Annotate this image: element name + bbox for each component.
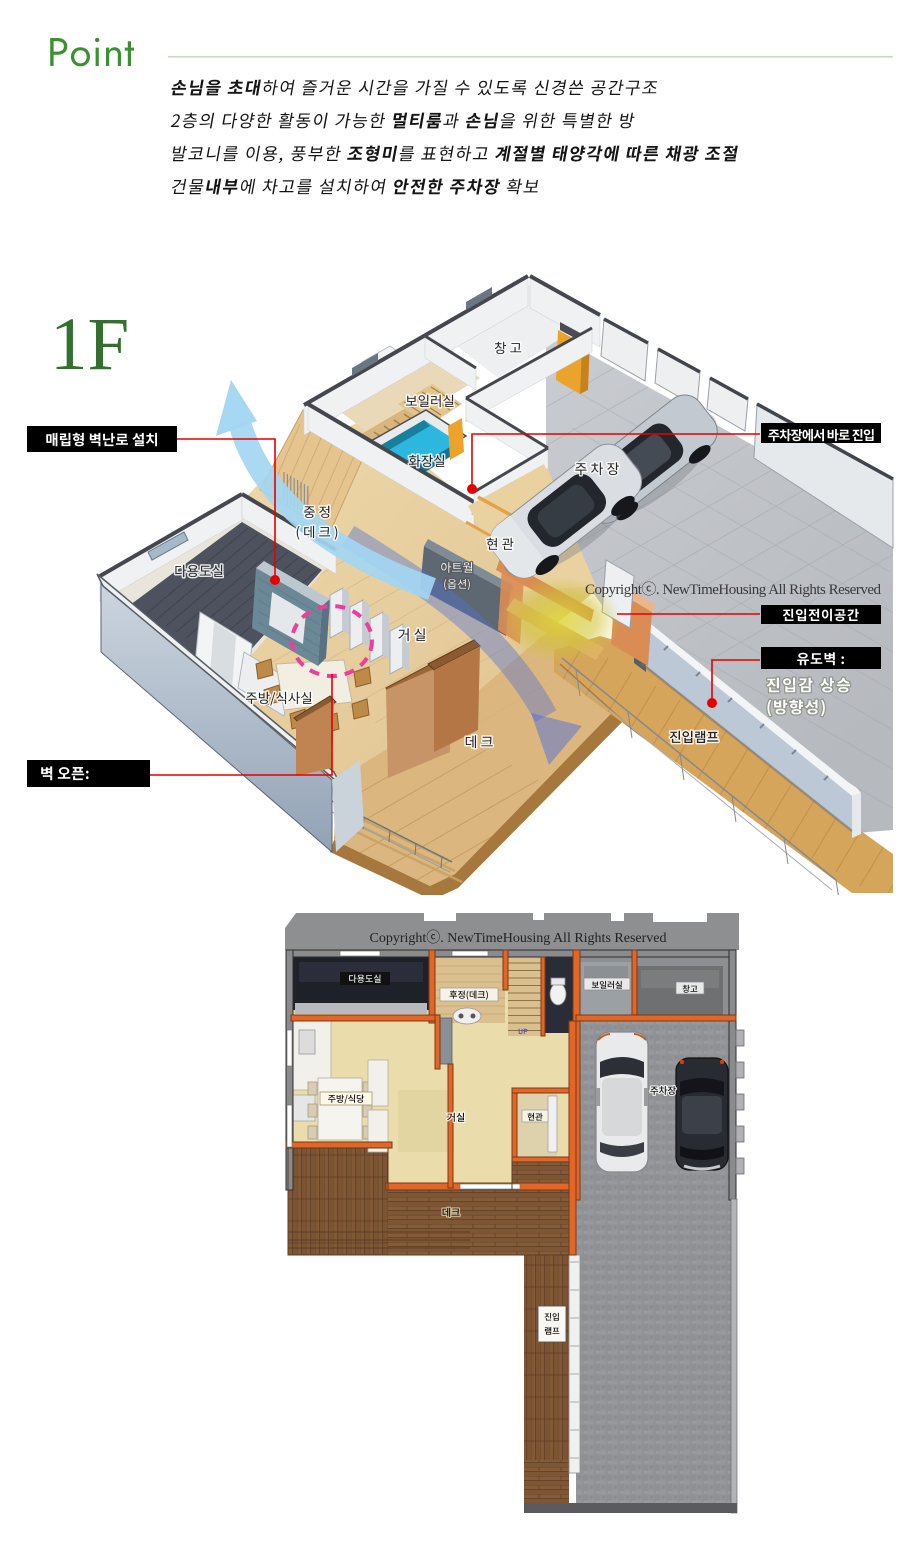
svg-text:Copyrightⓒ. NewTimeHousing All: Copyrightⓒ. NewTimeHousing All Rights Re… [585, 581, 882, 598]
svg-text:Copyrightⓒ. NewTimeHousing All: Copyrightⓒ. NewTimeHousing All Rights Re… [370, 930, 667, 946]
